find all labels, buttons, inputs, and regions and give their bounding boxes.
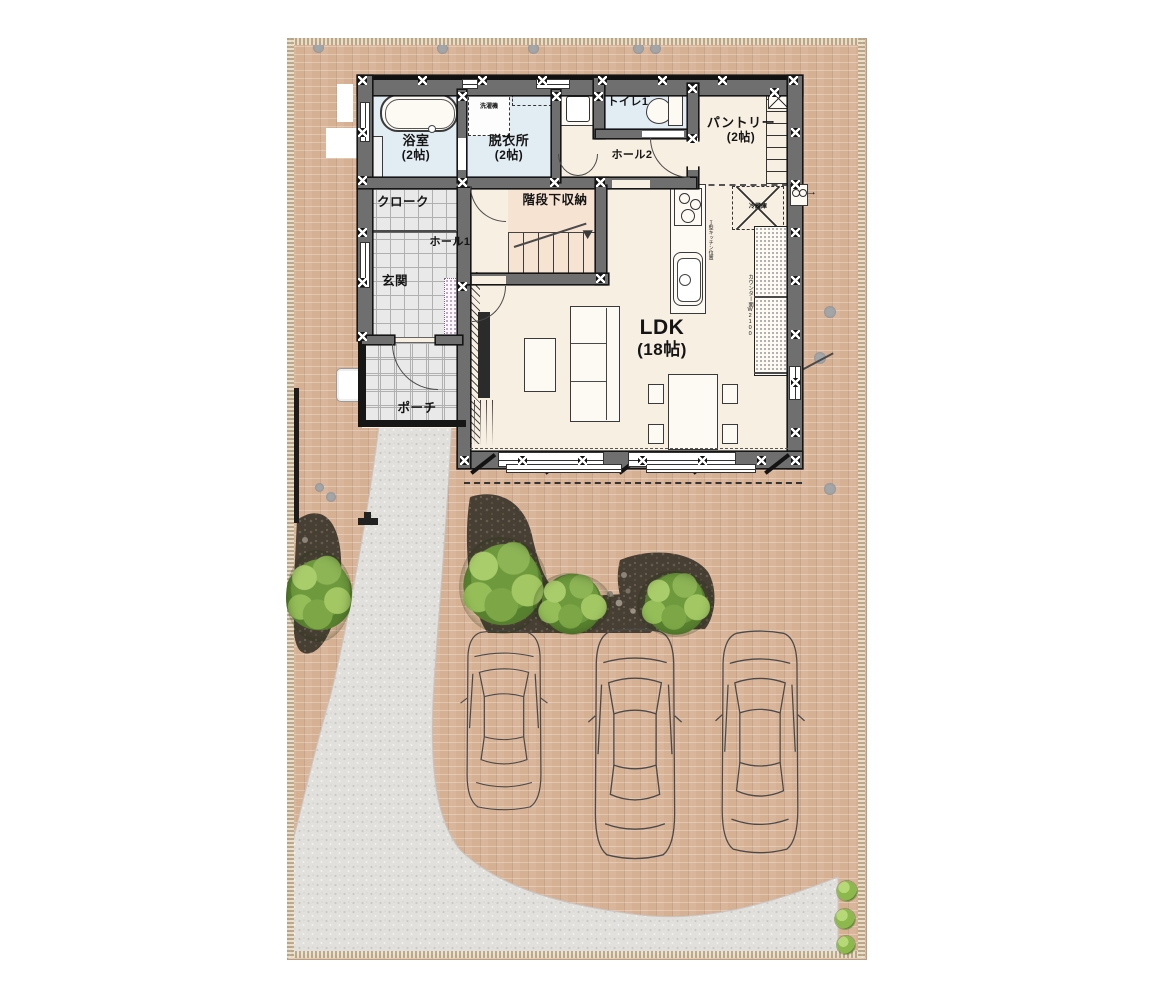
shrub — [835, 909, 855, 929]
wall-post — [791, 378, 800, 387]
room-label-hall2: ホール2 — [602, 149, 662, 161]
wall-post — [358, 228, 367, 237]
boundary-top — [287, 38, 865, 45]
wall-post — [791, 228, 800, 237]
wall-genkan-porch-b — [436, 336, 462, 344]
window-south-2-sill — [646, 464, 756, 473]
wall-post — [458, 282, 467, 291]
wall-post — [638, 456, 647, 465]
boundary-wall-segment — [294, 388, 299, 523]
wall-post — [698, 456, 707, 465]
wall-post — [598, 76, 607, 85]
wall-post — [460, 456, 469, 465]
sink-drain — [679, 274, 691, 286]
door-gap-hall1 — [472, 276, 506, 284]
wall-post — [358, 278, 367, 287]
room-label-pantry: パントリー(2帖) — [698, 116, 784, 144]
eave-line — [464, 482, 802, 484]
pantry-open-boundary — [698, 184, 788, 186]
wall-porch-south — [358, 420, 466, 427]
wall-post — [791, 128, 800, 137]
wall-dressing-nook — [552, 90, 560, 182]
bathtub-inner — [385, 99, 455, 129]
tv — [478, 312, 490, 398]
site-plan: → 浴室(2帖) 脱衣所(2帖) トイレ1 ホール2 パントリー(2帖) 階段下… — [0, 0, 1152, 1000]
door-gap-hall2-south — [612, 180, 650, 188]
label-counter: カウンター面W2100 — [747, 240, 753, 370]
door-gap-bath — [458, 138, 466, 170]
counter-divider-1 — [754, 296, 788, 298]
boundary-left — [287, 38, 294, 958]
burner-2 — [690, 199, 701, 210]
curtain-line — [470, 448, 788, 449]
wall-post — [578, 456, 587, 465]
driveway — [292, 418, 838, 955]
decor-louver — [468, 400, 498, 446]
room-label-porch: ポーチ — [384, 401, 450, 415]
heater-arrow: → — [806, 186, 818, 198]
burner-1 — [679, 193, 690, 204]
wall-post — [791, 180, 800, 189]
window-north-1 — [462, 79, 478, 89]
shrub — [837, 936, 855, 954]
wall-post — [791, 428, 800, 437]
dining-chair — [648, 384, 664, 404]
dining-chair — [722, 384, 738, 404]
stepping-stone — [315, 483, 324, 492]
sofa-cushion-line-1 — [571, 343, 607, 344]
room-label-genkan: 玄関 — [370, 274, 420, 288]
toilet-tank — [668, 94, 683, 126]
room-label-dressing: 脱衣所(2帖) — [466, 134, 552, 162]
room-label-ldk: LDK(18帖) — [612, 316, 712, 359]
label-kitchen-note: Ｉ型キッチン位置 — [707, 192, 713, 287]
sofa-cushion-line-2 — [571, 381, 607, 382]
door-gap-toilet — [642, 131, 684, 137]
wall-post — [789, 76, 798, 85]
stepping-stone — [824, 306, 836, 318]
wall-post — [770, 88, 779, 97]
room-label-understairs: 階段下収納 — [510, 193, 600, 207]
wall-post — [550, 178, 559, 187]
room-label-hall1: ホール1 — [422, 236, 478, 248]
dining-chair — [648, 424, 664, 444]
washbasin-bowl — [566, 96, 590, 122]
car — [588, 629, 681, 858]
wall-post — [658, 76, 667, 85]
wall-post — [688, 134, 697, 143]
dining-chair — [722, 424, 738, 444]
counter-cabinet — [754, 226, 788, 376]
wall-post — [358, 176, 367, 185]
wall-post — [791, 330, 800, 339]
car — [715, 631, 804, 853]
stepping-stone — [326, 492, 336, 502]
wall-post — [538, 76, 547, 85]
washing-machine — [468, 92, 510, 136]
shrub — [837, 881, 857, 901]
wall-post — [458, 92, 467, 101]
cloak-genkan-line — [362, 230, 456, 232]
wall-post — [358, 332, 367, 341]
blank-patch — [326, 128, 360, 158]
outdoor-faucet-head — [364, 512, 371, 519]
wall-post — [596, 178, 605, 187]
wall-post — [791, 456, 800, 465]
wall-post — [418, 76, 427, 85]
stairs — [508, 232, 600, 278]
label-fridge: 冷蔵庫 — [734, 204, 782, 211]
wall-post — [791, 276, 800, 285]
wall-post — [688, 84, 697, 93]
room-label-cloak: クローク — [366, 195, 440, 209]
wall-ldk-west — [458, 282, 470, 468]
stepping-stone — [824, 483, 836, 495]
dining-table — [668, 374, 718, 450]
burner-3 — [681, 209, 695, 223]
wall-post — [552, 92, 561, 101]
cars — [461, 629, 805, 858]
counter-divider-2 — [754, 372, 788, 374]
car — [461, 631, 548, 810]
wall-post — [458, 178, 467, 187]
room-label-bath: 浴室(2帖) — [376, 134, 456, 162]
window-south-1-sill — [506, 464, 622, 473]
boundary-bottom — [287, 951, 865, 958]
bath-drain — [428, 125, 436, 133]
wall-post — [358, 76, 367, 85]
wall-post — [518, 456, 527, 465]
wall-post — [718, 76, 727, 85]
label-washer: 洗濯機 — [466, 104, 512, 111]
wall-post — [358, 128, 367, 137]
blank-patch — [337, 84, 353, 122]
wall-post — [478, 76, 487, 85]
coffee-table — [524, 338, 556, 392]
wall-post — [757, 456, 766, 465]
wall-post — [596, 274, 605, 283]
wall-porch-west — [358, 338, 366, 426]
room-label-toilet: トイレ1 — [598, 96, 658, 108]
outdoor-faucet — [358, 518, 378, 525]
boundary-right — [858, 38, 865, 958]
